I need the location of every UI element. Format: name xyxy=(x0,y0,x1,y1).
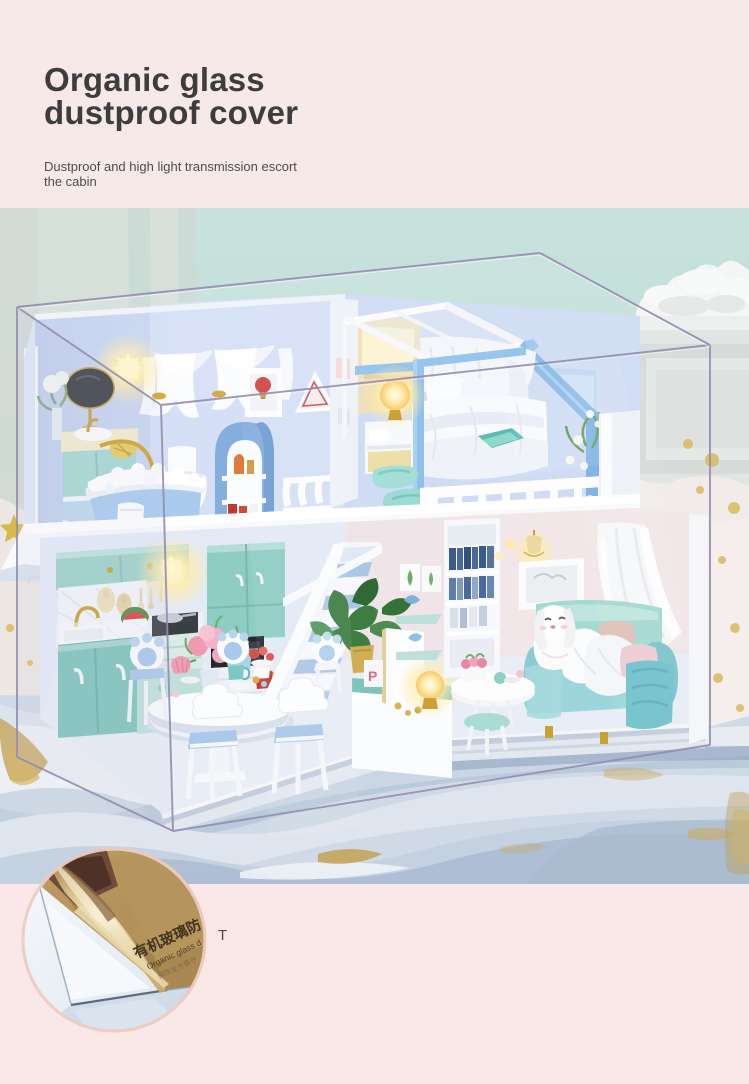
svg-text:P: P xyxy=(368,668,377,684)
